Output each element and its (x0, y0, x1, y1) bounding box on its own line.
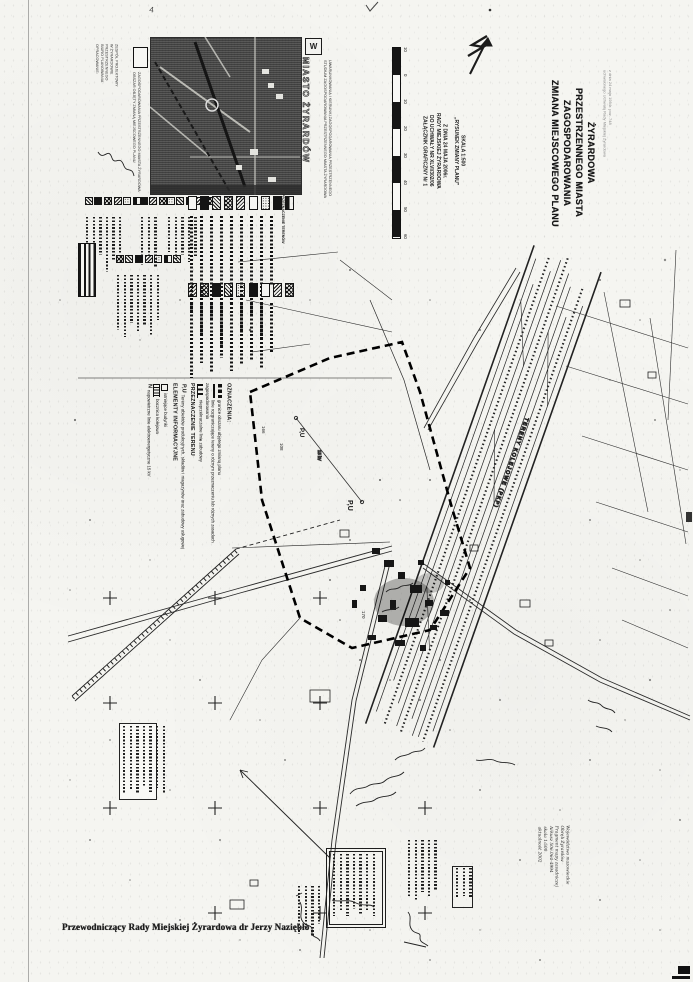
oznaczenia-section-header: PRZEZNACZENIE TERENU (188, 383, 195, 559)
scale-tick: 50 (403, 207, 408, 212)
scale-bar: 10 0 10 20 30 40 50 60 (392, 47, 416, 241)
zone-label: P,U (298, 428, 304, 437)
legend-swatch-group-large (186, 283, 296, 378)
legend-swatches (84, 197, 142, 215)
legend-item: P,UTereny obiektów produkcyjnych, składó… (180, 383, 185, 559)
scale-tick: 0 (403, 74, 408, 76)
scan-mark: 4 (149, 5, 155, 15)
oznaczenia-legend: OZNACZENIA: granice obszaru objętego zmi… (84, 383, 234, 559)
legend-item: granice obszaru objętego zmianą planu (217, 383, 222, 559)
plan-boundary (250, 342, 470, 648)
striped-stamp-box (78, 243, 96, 297)
legend-item-label: nieprzekraczalne linie zabudowy (198, 400, 203, 462)
city-crest-icon: W (305, 38, 322, 55)
railway-corridor: TERENY KOLEJOWE (PKP) (366, 245, 602, 747)
inset-city-label: MIASTO ŻYRARDÓW (301, 57, 311, 253)
legend-item-label: linie rozgraniczające tereny o różnym pr… (205, 383, 215, 543)
map-title-line: ZMIANA MIEJSCOWEGO PLANU (549, 58, 561, 248)
legend-swatches (186, 283, 296, 301)
annex-line: Z DNIA 24 MAJA 2006r. (441, 63, 448, 239)
map-title: ZMIANA MIEJSCOWEGO PLANU ZAGOSPODAROWANI… (549, 58, 597, 248)
north-arrow-icon (468, 36, 492, 74)
annex-line: DO UCHWAŁY NR XLVI/302/06 (428, 63, 435, 239)
scale-tick: 30 (403, 153, 408, 158)
legend-swatch-group (115, 255, 182, 337)
legend-swatches (186, 196, 296, 214)
map-title-line: ZAGOSPODAROWANIA (561, 58, 573, 248)
legend-item: nieprzekraczalne linie zabudowy (197, 383, 203, 559)
legend-item: bocznica kolejowa (153, 383, 160, 559)
scan-mark (489, 9, 492, 12)
pu-zone-symbol: P,U (180, 384, 185, 393)
legend-item: Nnapowietrzne linie elektroenergetyczne … (146, 383, 151, 559)
parcel-number: 170 (361, 611, 366, 619)
legend-item: istniejące budynki (161, 383, 168, 559)
metadata-line: aktualność 2002 (536, 827, 542, 957)
scanned-plan-page: 4 TERE (0, 0, 693, 982)
map-title-line: ŻYRARDOWA (585, 58, 597, 248)
legend-item-label: istniejące budynki (163, 393, 168, 427)
map-title-note-line: z dnia 24 maja 1994r. poz. 748 (608, 70, 614, 230)
scale-tick: 40 (403, 180, 408, 185)
parcel-number: 166 (261, 426, 266, 434)
inset-map-streets (150, 37, 302, 195)
metadata-line: Województwo mazowieckie (564, 825, 570, 955)
map-sheet-metadata: Województwo mazowieckie Obręb Żyrardów F… (536, 825, 570, 957)
map-title-note: uchwalonego Uchwałą Rady Miejskiej Żyrar… (602, 70, 613, 230)
legend-swatches (115, 255, 182, 273)
legend-item: linie rozgraniczające tereny o różnym pr… (205, 383, 216, 559)
plan-area-caption-line: ZAGOSPODAROWANIA PRZESTRZENNEGO MIASTA Ż… (136, 72, 141, 214)
inset-side-caption-line: UWARUNKOWANIA I KIERUNKI ZAGOSPODAROWANI… (327, 60, 332, 252)
metadata-line: skala 1:500 (542, 826, 548, 956)
metadata-line: Fragment mapy zasadniczej (553, 826, 559, 956)
scan-corner-mark (672, 966, 690, 979)
legend-item-label: napowietrzne linie elektroenergetyczne 1… (147, 390, 152, 476)
parcel-number: 108 (279, 443, 284, 451)
legend-label-bars (186, 303, 296, 378)
oznaczenia-header: OZNACZENIA: (225, 383, 232, 559)
building-outlines (230, 300, 656, 909)
triangle-line-symbol (197, 384, 203, 398)
solid-line-symbol (213, 384, 216, 398)
credit-line: ZESPÓŁ PROJEKTOWY (114, 44, 119, 148)
inset-side-caption: STUDIUM ZAGOSPODAROWANIA PRZESTRZENNEGO … (322, 60, 332, 252)
power-line-label: 15 kV (317, 450, 322, 461)
legend-item-label: bocznica kolejowa (155, 399, 160, 434)
plan-area-caption: OBSZAR OBJĘTY ZMIANĄ MIEJSCOWEGO PLANU Z… (131, 72, 141, 214)
inset-credit-block: OPRACOWANIE: BIURO PLANOWANIA PRZESTRZEN… (94, 44, 119, 148)
surveyor-note-box (119, 723, 157, 800)
scale-bar-segments (392, 47, 401, 239)
boundary-dash-symbol (218, 384, 222, 398)
annex-subtitle: „RYSUNEK ZMIANY PLANU” (452, 63, 459, 239)
scale-tick: 10 (403, 47, 408, 52)
annex-line: RADY MIEJSKIEJ ŻYRARDOWA (434, 63, 441, 239)
annex-header: ZAŁĄCZNIK GRAFICZNY Nr 1 DO UCHWAŁY NR X… (421, 63, 466, 239)
stamp-text-bars (329, 851, 383, 925)
rail-track-symbol (153, 384, 160, 397)
annex-scale: SKALA 1:500 (459, 63, 466, 239)
inset-map-photo (150, 37, 302, 195)
annex-line: ZAŁĄCZNIK GRAFICZNY Nr 1 (421, 63, 428, 239)
zone-label: P,U (346, 500, 353, 511)
geodesy-stamp-box (326, 848, 386, 928)
scale-bar-ticks: 10 0 10 20 30 40 50 60 (403, 47, 408, 239)
scale-tick: 10 (403, 99, 408, 104)
power-line-symbol: N (146, 384, 151, 388)
acceptance-stamp-box (452, 866, 473, 908)
legend-label-bars (115, 275, 182, 337)
scale-tick: 60 (403, 234, 408, 239)
map-title-line: PRZESTRZENNEGO MIASTA (573, 58, 585, 248)
legend-swatches (139, 197, 168, 215)
legend-section-header: PRZEZNACZENIE TERENÓW (281, 194, 285, 278)
legend-item-label: Tereny obiektów produkcyjnych, składów i… (180, 395, 185, 549)
scan-mark (366, 2, 378, 11)
scan-mark (686, 512, 692, 522)
legend-item-label: granice obszaru objętego zmianą planu (217, 400, 222, 475)
oznaczenia-section-header: ELEMENTY INFORMACYJNE (171, 383, 178, 559)
metadata-line: Obręb Żyrardów (558, 825, 564, 955)
certification-note-bars (406, 840, 442, 904)
plan-area-symbol (133, 47, 148, 68)
metadata-line: Arkusz 506.064-4994 (547, 826, 553, 956)
scale-tick: 20 (403, 126, 408, 131)
chairman-signature-caption: Przewodniczący Rady Miejskiej Żyrardowa … (62, 922, 309, 932)
building-square-symbol (161, 384, 168, 391)
